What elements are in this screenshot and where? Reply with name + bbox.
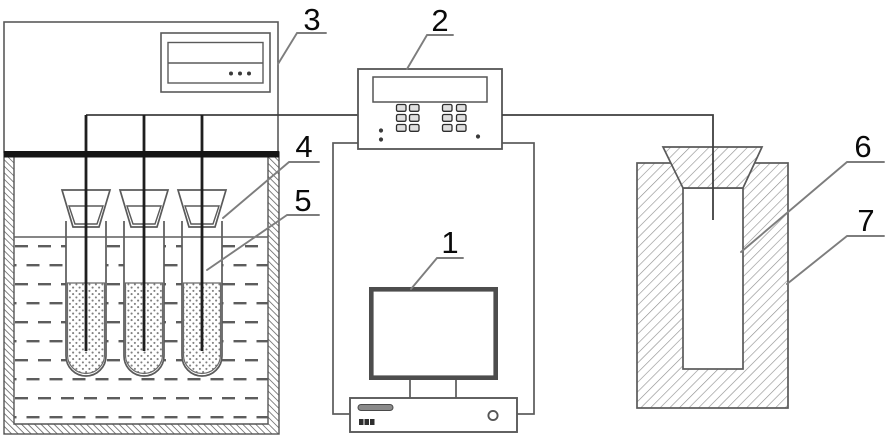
label-number: 7 [857,203,874,238]
data-logger-screen [373,77,487,102]
computer-monitor [371,289,495,377]
water-bath-assembly [4,22,358,434]
data-logger-unit [358,69,502,149]
drive-slot [358,405,393,411]
label-number: 2 [431,3,448,38]
keypad-key [397,115,407,122]
heater-bar [4,151,279,158]
label-leader-line [278,33,326,64]
apparatus-schematic: 1 2 3 4 5 6 7 [0,0,886,446]
label-leader-line [787,236,884,284]
callout-3: 3 [278,2,326,64]
callout-7: 7 [787,203,884,284]
callout-2: 2 [407,3,453,69]
label-number: 1 [441,225,458,260]
computer [350,289,517,432]
keypad-key [443,115,453,122]
furnace-assembly [502,115,788,408]
keypad-key [410,115,420,122]
keypad-key [443,125,453,132]
keypad-key [457,115,467,122]
keypad-key [410,105,420,112]
keypad-key [397,105,407,112]
label-number: 6 [854,129,871,164]
logger-computer-assembly [333,69,534,432]
keypad-key [397,125,407,132]
keypad-key [457,125,467,132]
schematic-diagram-canvas: 1 2 3 4 5 6 7 [0,0,886,446]
keypad-key [457,105,467,112]
keypad-key [410,125,420,132]
keypad-key [443,105,453,112]
label-leader-line [407,35,453,69]
bath-controller-display-unit [161,33,270,92]
label-number: 3 [303,2,320,37]
label-number: 4 [295,129,312,164]
power-button [488,411,497,420]
vent-grill [359,419,375,425]
controller-indicator-dots [229,72,251,76]
label-number: 5 [294,183,311,218]
